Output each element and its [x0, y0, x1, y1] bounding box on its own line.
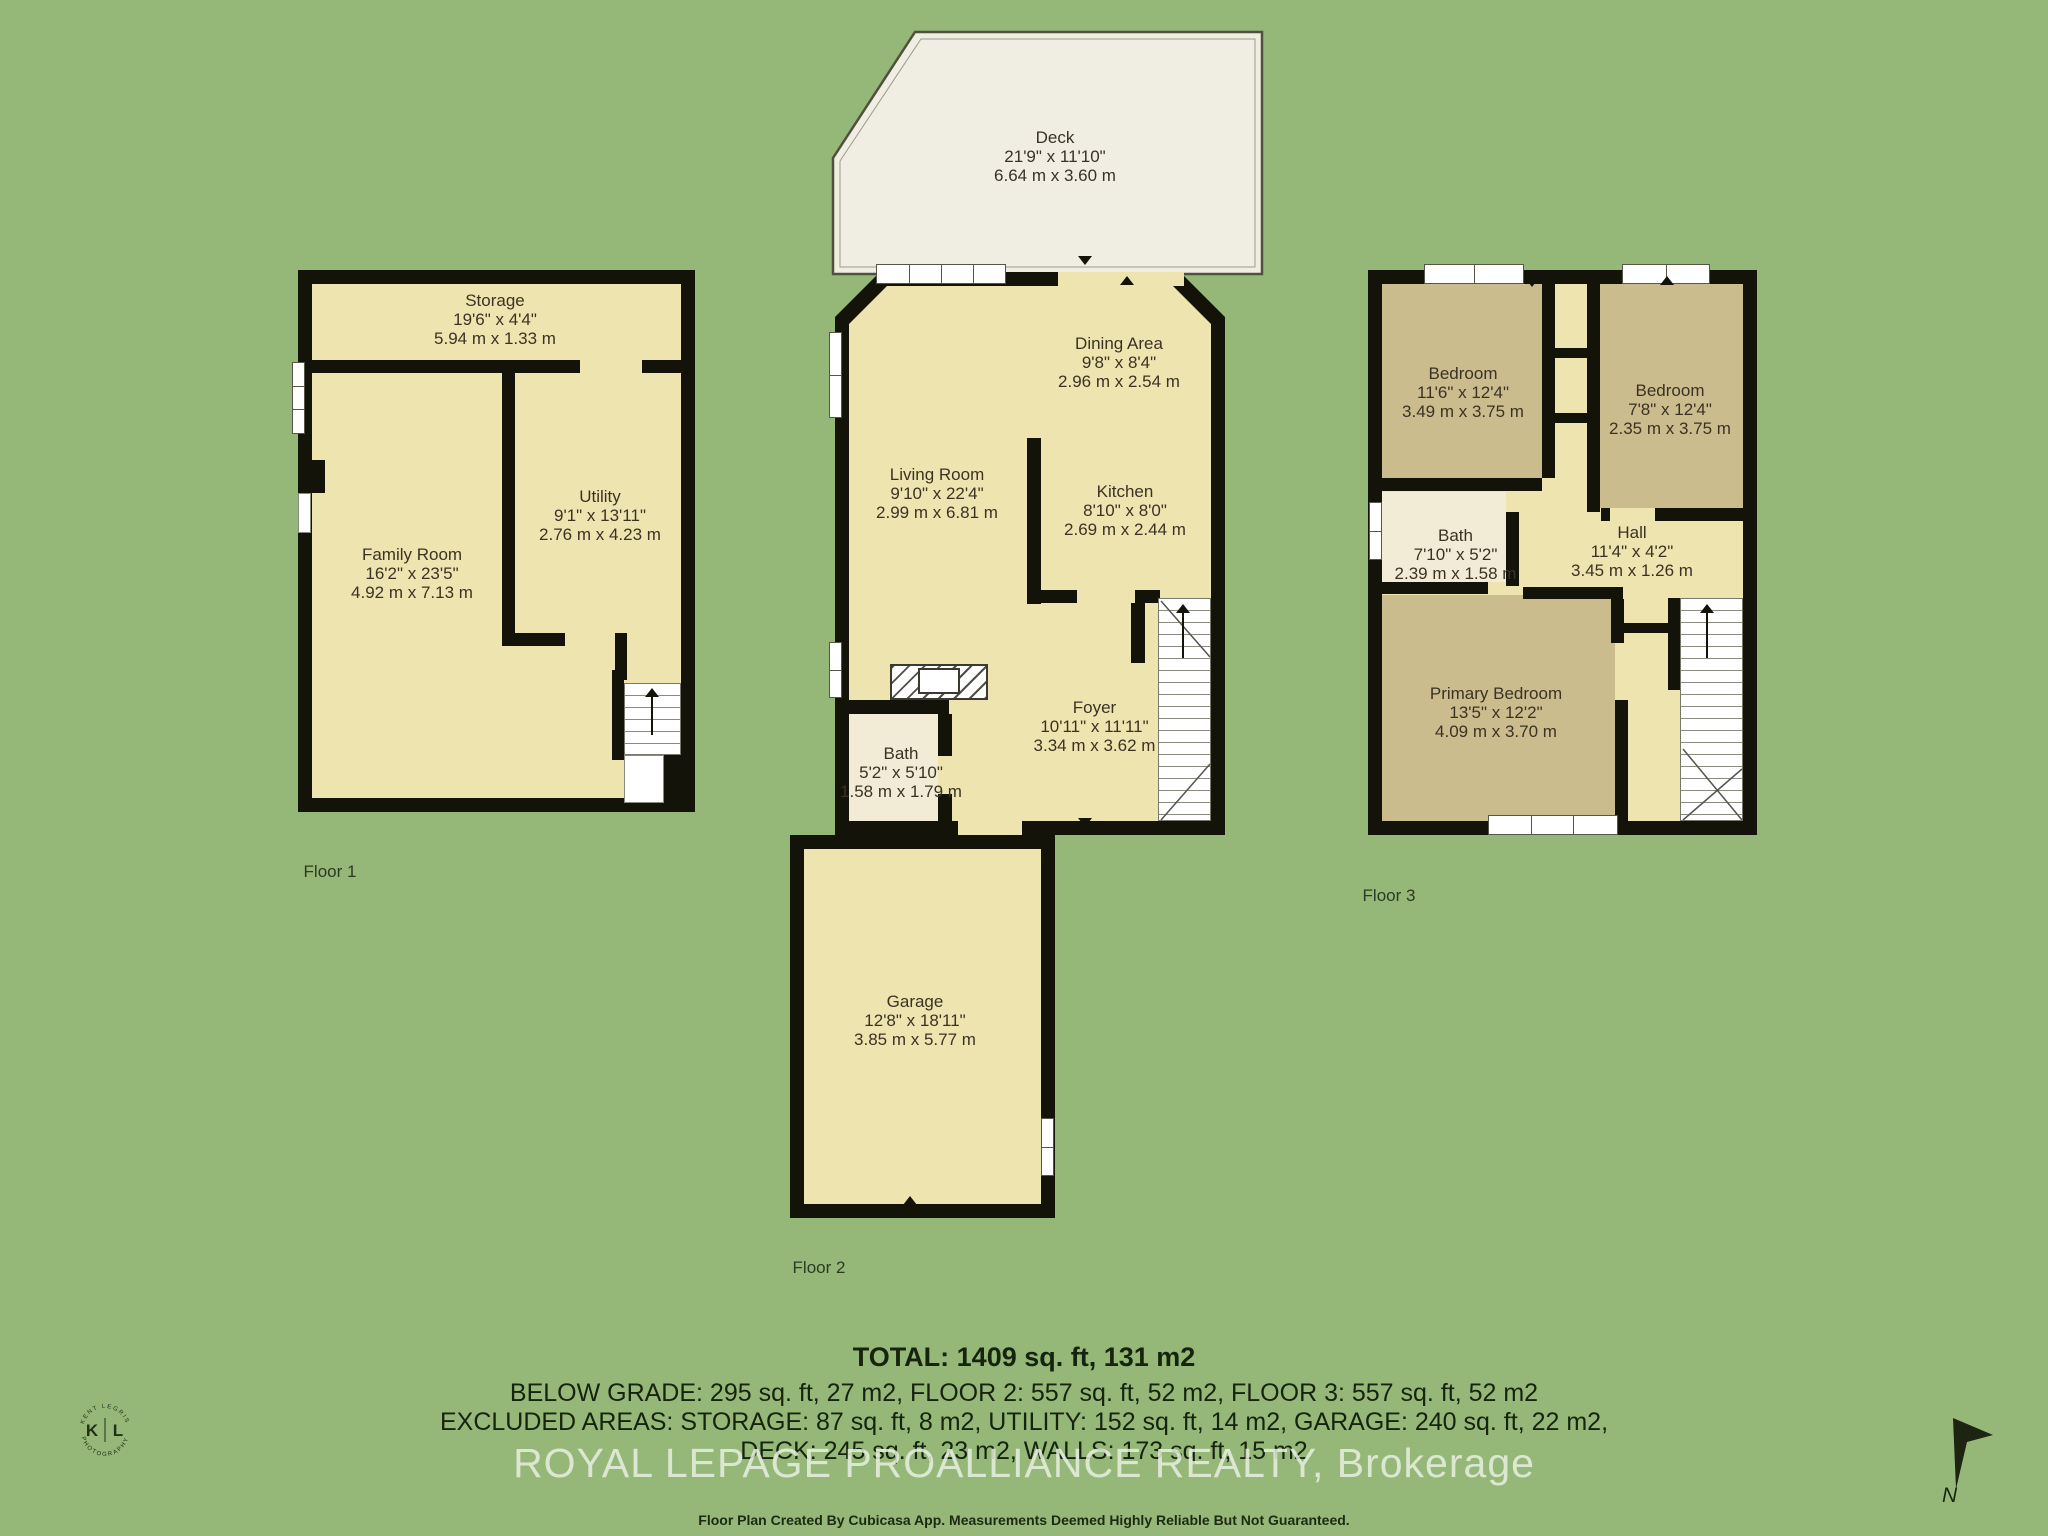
wall-segment [664, 755, 681, 803]
room-dim-ft: 9'8" x 8'4" [1019, 353, 1219, 372]
wall-segment [1135, 590, 1160, 603]
door-opening [565, 633, 615, 646]
room-name: Living Room [837, 465, 1037, 484]
room-dim-ft: 11'6" x 12'4" [1373, 383, 1553, 402]
dimension-marker [1078, 256, 1092, 265]
stair-hatch-area [890, 664, 988, 700]
room-name: Utility [505, 487, 695, 506]
stair-arrow-line [1182, 613, 1184, 658]
room-dim-ft: 7'8" x 12'4" [1580, 400, 1760, 419]
window [876, 264, 1006, 284]
window [829, 332, 842, 418]
stair-arrow-line [651, 697, 653, 735]
room-dim-ft: 9'10" x 22'4" [837, 484, 1037, 503]
room-label-living-room: Living Room 9'10" x 22'4" 2.99 m x 6.81 … [837, 465, 1037, 522]
room-dim-ft: 16'2" x 23'5" [297, 564, 527, 583]
wall-segment [612, 670, 624, 760]
room-label-bedroom1: Bedroom 11'6" x 12'4" 3.49 m x 3.75 m [1373, 364, 1553, 421]
wall-segment [1611, 599, 1624, 643]
dimension-marker [497, 274, 511, 283]
wall-segment [849, 700, 949, 714]
window [829, 642, 842, 698]
room-name: Foyer [1007, 698, 1182, 717]
stair-hatch-box [918, 668, 960, 694]
floor1-label: Floor 1 [280, 862, 380, 882]
wall-segment [312, 460, 325, 493]
stair-winder-lines [1681, 599, 1744, 822]
room-dim-m: 6.64 m x 3.60 m [950, 166, 1160, 185]
stair-direction-arrow [645, 688, 659, 697]
window-mullion [1573, 816, 1574, 834]
room-label-foyer: Foyer 10'11" x 11'11" 3.34 m x 3.62 m [1007, 698, 1182, 755]
window-mullion [941, 265, 942, 283]
room-name: Family Room [297, 545, 527, 564]
stairs-floor3 [1680, 598, 1743, 821]
room-dim-ft: 7'10" x 5'2" [1368, 545, 1543, 564]
room-name: Dining Area [1019, 334, 1219, 353]
room-label-hall: Hall 11'4" x 4'2" 3.45 m x 1.26 m [1542, 523, 1722, 580]
stair-landing [624, 755, 664, 803]
room-dim-ft: 5'2" x 5'10" [836, 763, 966, 782]
room-dim-m: 2.76 m x 4.23 m [505, 525, 695, 544]
room-dim-ft: 21'9" x 11'10" [950, 147, 1160, 166]
door-opening [580, 360, 642, 373]
wall-segment [1668, 598, 1680, 690]
room-dim-m: 2.99 m x 6.81 m [837, 503, 1037, 522]
dimension-marker [1120, 276, 1134, 285]
stair-arrow-line [1706, 613, 1708, 658]
wall-segment [1131, 603, 1145, 663]
room-name: Storage [380, 291, 610, 310]
room-label-family-room: Family Room 16'2" x 23'5" 4.92 m x 7.13 … [297, 545, 527, 602]
window-mullion [293, 409, 304, 410]
wall-segment [1615, 700, 1628, 821]
room-dim-ft: 13'5" x 12'2" [1380, 703, 1612, 722]
summary-line-3: EXCLUDED AREAS: STORAGE: 87 sq. ft, 8 m2… [0, 1408, 2048, 1437]
room-label-bath-floor3: Bath 7'10" x 5'2" 2.39 m x 1.58 m [1368, 526, 1543, 583]
wall-segment [1382, 582, 1488, 594]
wall-segment [1382, 478, 1542, 491]
room-dim-m: 4.92 m x 7.13 m [297, 583, 527, 602]
room-dim-ft: 12'8" x 18'11" [815, 1011, 1015, 1030]
door-opening [1610, 508, 1655, 521]
brokerage-watermark: ROYAL LEPAGE PROALLIANCE REALTY, Brokera… [0, 1440, 2048, 1487]
dimension-marker [903, 1196, 917, 1205]
dimension-marker [1660, 276, 1674, 285]
room-label-dining-area: Dining Area 9'8" x 8'4" 2.96 m x 2.54 m [1019, 334, 1219, 391]
room-dim-ft: 11'4" x 4'2" [1542, 542, 1722, 561]
wall-segment [1523, 587, 1623, 599]
room-dim-m: 2.96 m x 2.54 m [1019, 372, 1219, 391]
room-dim-ft: 19'6" x 4'4" [380, 310, 610, 329]
room-name: Hall [1542, 523, 1722, 542]
room-label-storage: Storage 19'6" x 4'4" 5.94 m x 1.33 m [380, 291, 610, 348]
room-name: Primary Bedroom [1380, 684, 1612, 703]
dimension-marker [1525, 278, 1539, 287]
room-dim-m: 4.09 m x 3.70 m [1380, 722, 1612, 741]
logo-letter-l: L [113, 1421, 123, 1440]
room-label-bath-floor2: Bath 5'2" x 5'10" 1.58 m x 1.79 m [836, 744, 966, 801]
logo-letter-k: K [86, 1421, 99, 1440]
room-dim-m: 3.49 m x 3.75 m [1373, 402, 1553, 421]
room-name: Bedroom [1580, 381, 1760, 400]
dimension-marker [1078, 818, 1092, 827]
wall-niche [298, 493, 311, 533]
room-dim-m: 5.94 m x 1.33 m [380, 329, 610, 348]
floor3-label: Floor 3 [1339, 886, 1439, 906]
window-mullion [293, 386, 304, 387]
room-name: Bath [836, 744, 966, 763]
room-name: Garage [815, 992, 1015, 1011]
window [292, 362, 305, 434]
room-dim-ft: 9'1" x 13'11" [505, 506, 695, 525]
room-label-kitchen: Kitchen 8'10" x 8'0" 2.69 m x 2.44 m [1025, 482, 1225, 539]
window-mullion [830, 670, 841, 671]
window [1488, 815, 1618, 835]
room-dim-m: 3.34 m x 3.62 m [1007, 736, 1182, 755]
window [1424, 264, 1524, 284]
summary-line-2: BELOW GRADE: 295 sq. ft, 27 m2, FLOOR 2:… [0, 1379, 2048, 1408]
window [1041, 1118, 1054, 1176]
room-name: Bedroom [1373, 364, 1553, 383]
wall-segment [1555, 348, 1587, 358]
room-name: Deck [950, 128, 1160, 147]
wall-segment [1030, 590, 1077, 603]
room-dim-ft: 8'10" x 8'0" [1025, 501, 1225, 520]
summary-total: TOTAL: 1409 sq. ft, 131 m2 [0, 1342, 2048, 1373]
room-dim-m: 2.69 m x 2.44 m [1025, 520, 1225, 539]
window-mullion [830, 375, 841, 376]
stair-direction-arrow [1700, 604, 1714, 613]
floor2-label: Floor 2 [769, 1258, 869, 1278]
room-dim-m: 2.39 m x 1.58 m [1368, 564, 1543, 583]
window-mullion [1042, 1147, 1053, 1148]
room-label-primary-bedroom: Primary Bedroom 13'5" x 12'2" 4.09 m x 3… [1380, 684, 1612, 741]
room-dim-m: 2.35 m x 3.75 m [1580, 419, 1760, 438]
window-mullion [1531, 816, 1532, 834]
room-dim-m: 3.85 m x 5.77 m [815, 1030, 1015, 1049]
room-label-deck: Deck 21'9" x 11'10" 6.64 m x 3.60 m [950, 128, 1160, 185]
room-name: Bath [1368, 526, 1543, 545]
room-label-garage: Garage 12'8" x 18'11" 3.85 m x 5.77 m [815, 992, 1015, 1049]
room-dim-m: 3.45 m x 1.26 m [1542, 561, 1722, 580]
north-label: N [1942, 1484, 1957, 1508]
window-mullion [909, 265, 910, 283]
room-label-bedroom2: Bedroom 7'8" x 12'4" 2.35 m x 3.75 m [1580, 381, 1760, 438]
room-label-utility: Utility 9'1" x 13'11" 2.76 m x 4.23 m [505, 487, 695, 544]
door-opening [958, 821, 1022, 835]
floor-plan-canvas: Deck 21'9" x 11'10" 6.64 m x 3.60 m Stor… [0, 0, 2048, 1536]
window-mullion [973, 265, 974, 283]
room-dim-ft: 10'11" x 11'11" [1007, 717, 1182, 736]
room-dim-m: 1.58 m x 1.79 m [836, 782, 966, 801]
room-name: Kitchen [1025, 482, 1225, 501]
stair-direction-arrow [1176, 604, 1190, 613]
disclaimer-text: Floor Plan Created By Cubicasa App. Meas… [0, 1512, 2048, 1528]
window-mullion [1474, 265, 1475, 283]
